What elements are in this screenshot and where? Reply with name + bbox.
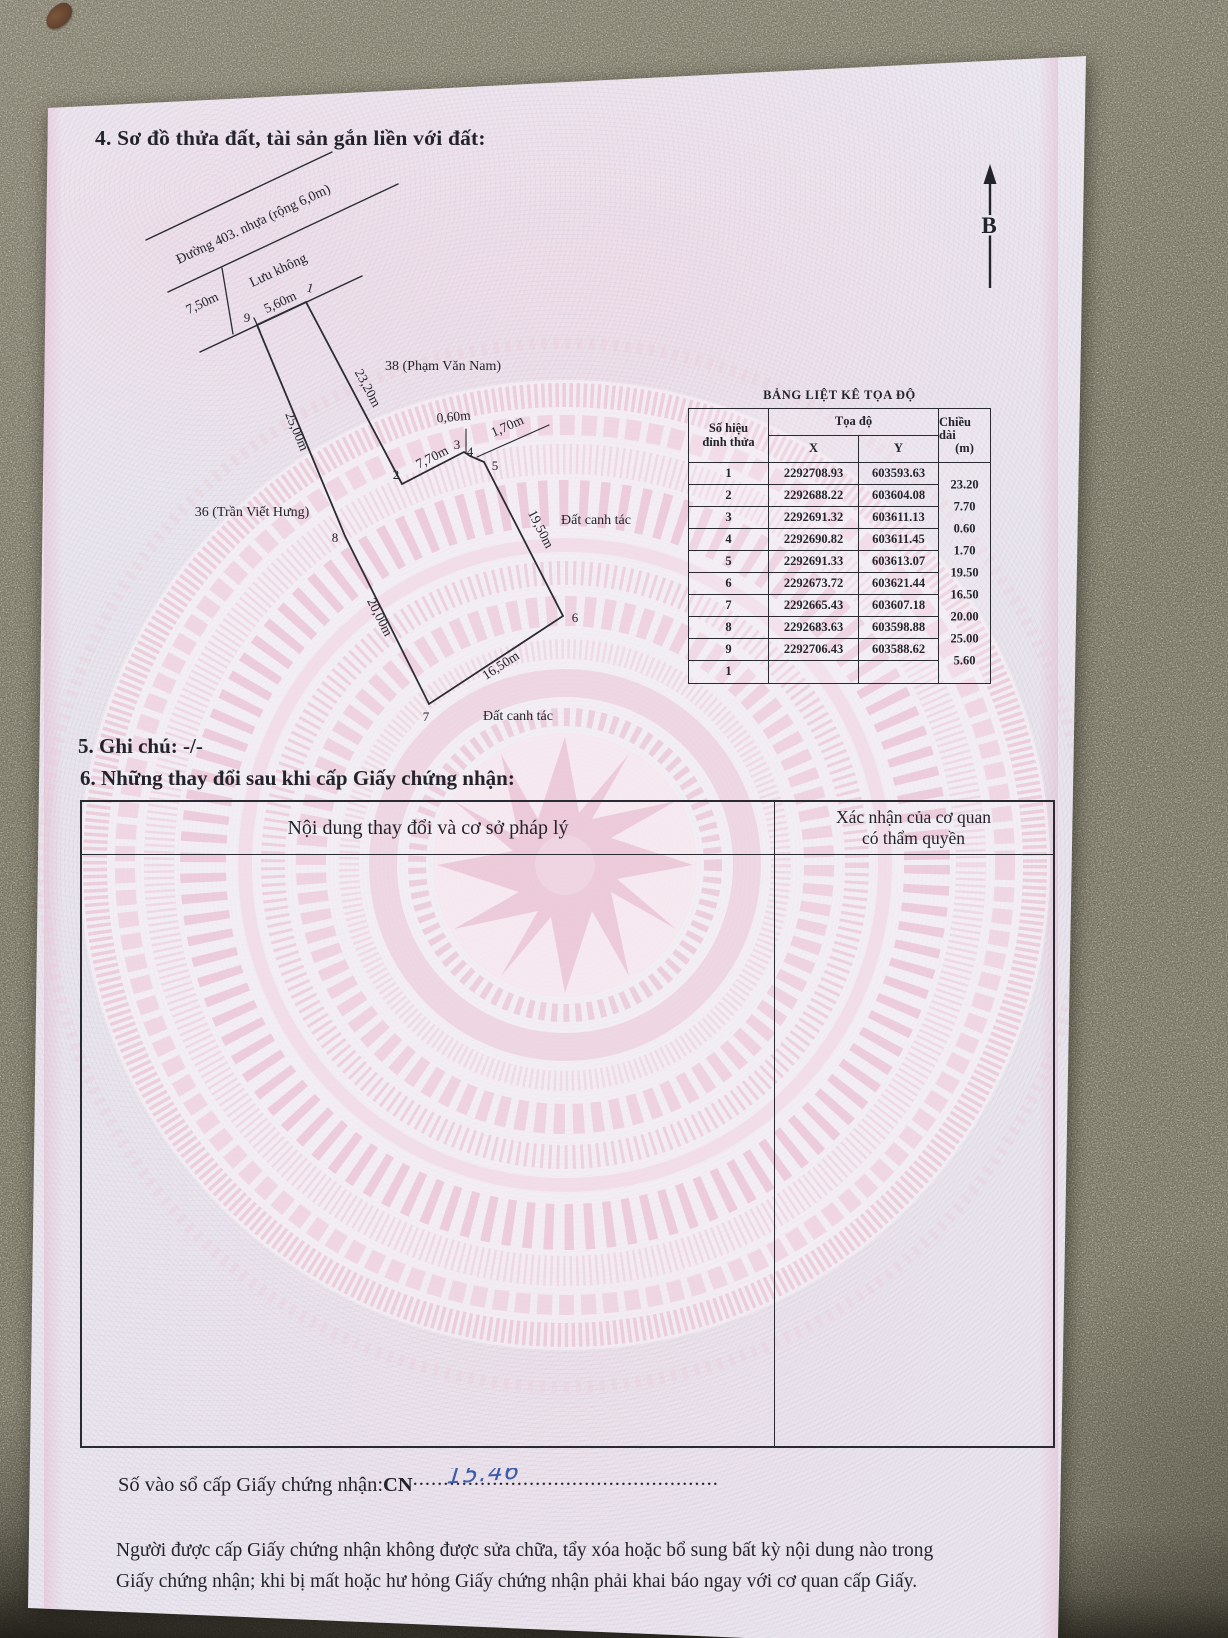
- coordinate-table: Số hiệu đỉnh thửa Tọa độ Chiều dài (m) X…: [688, 408, 991, 684]
- buffer-zone-label: Lưu không: [247, 251, 309, 291]
- coordinate-table-header-length: Chiều dài (m): [939, 409, 990, 463]
- vertex-id-cell: 4: [689, 529, 769, 551]
- parcel-diagram: Đường 403. nhựa (rộng 6,0m) 7,50m Lưu kh…: [140, 140, 715, 740]
- vertex-id-cell: 7: [689, 595, 769, 617]
- edge-length-value: 0.60: [939, 522, 990, 535]
- land-use-right-label: Đất canh tác: [561, 513, 631, 528]
- neighbor-right-label: 38 (Phạm Văn Nam): [385, 359, 501, 374]
- photographed-land-certificate: 4. Sơ đồ thửa đất, tài sản gắn liền với …: [0, 0, 1228, 1638]
- dim-20-00-label: 20,00m: [364, 595, 396, 639]
- north-arrow: B: [930, 150, 1055, 310]
- changes-table-header-divider: [82, 854, 1053, 855]
- edge-length-value: 7.70: [939, 500, 990, 513]
- edge-length-value: 16.50: [939, 588, 990, 601]
- header-vertex-line2: đỉnh thửa: [702, 436, 754, 449]
- header-length-line1: Chiều dài: [939, 416, 990, 442]
- section6-title: 6. Những thay đổi sau khi cấp Giấy chứng…: [80, 766, 515, 791]
- land-use-bottom-label: Đất canh tác: [483, 709, 553, 724]
- edge-length-value: 5.60: [939, 654, 990, 667]
- coord-y-cell: 603621.44: [859, 573, 939, 595]
- edge-length-value: 20.00: [939, 610, 990, 623]
- coord-y-cell: 603611.13: [859, 507, 939, 529]
- vertex-3-label: 3: [454, 437, 461, 452]
- coordinate-table-header-y: Y: [859, 436, 939, 463]
- dim-7-70-label: 7,70m: [413, 442, 451, 471]
- coord-x-cell: 2292691.33: [769, 551, 859, 573]
- vertex-id-cell: 1: [689, 661, 769, 683]
- vertex-id-cell: 8: [689, 617, 769, 639]
- setback-dim-label: 7,50m: [183, 289, 221, 317]
- changes-table-column-divider: [774, 802, 775, 1446]
- edge-length-value: 23.20: [939, 478, 990, 491]
- header-length-line2: (m): [955, 442, 974, 455]
- vertex-1-label: 1: [305, 280, 315, 296]
- dim-0-60-label: 0,60m: [436, 408, 472, 426]
- coord-x-cell: 2292673.72: [769, 573, 859, 595]
- north-label: B: [981, 213, 996, 238]
- coord-x-cell: [769, 661, 859, 683]
- registry-prefix: CN: [383, 1474, 413, 1496]
- coord-x-cell: 2292683.63: [769, 617, 859, 639]
- dim-19-50-label: 19,50m: [525, 507, 557, 551]
- vertex-5-label: 5: [492, 458, 499, 473]
- coordinate-table-header-x: X: [769, 436, 859, 463]
- coordinate-table-title: BẢNG LIỆT KÊ TỌA ĐỘ: [688, 388, 991, 403]
- vertex-2-label: 2: [393, 467, 400, 482]
- dim-16-50-label: 16,50m: [479, 648, 522, 683]
- vertex-7-label: 7: [423, 709, 430, 724]
- vertex-8-label: 8: [332, 530, 339, 545]
- changes-confirmation-header: Xác nhận của cơ quan có thẩm quyền: [774, 802, 1053, 854]
- coord-y-cell: 603593.63: [859, 463, 939, 485]
- registry-label: Số vào sổ cấp Giấy chứng nhận:: [118, 1474, 383, 1496]
- neighbor-left-label: 36 (Trần Viết Hưng): [195, 505, 310, 520]
- registry-number-line: Số vào sổ cấp Giấy chứng nhận:CN........…: [118, 1468, 785, 1497]
- vertex-9-label: 9: [244, 310, 251, 325]
- changes-content-header: Nội dung thay đổi và cơ sở pháp lý: [82, 802, 774, 854]
- coord-x-cell: 2292706.43: [769, 639, 859, 661]
- coord-y-cell: 603588.62: [859, 639, 939, 661]
- changes-table: Nội dung thay đổi và cơ sở pháp lý Xác n…: [80, 800, 1055, 1448]
- coord-y-cell: 603598.88: [859, 617, 939, 639]
- coord-y-cell: 603607.18: [859, 595, 939, 617]
- coord-y-cell: 603613.07: [859, 551, 939, 573]
- vertex-id-cell: 6: [689, 573, 769, 595]
- coord-x-cell: 2292665.43: [769, 595, 859, 617]
- registry-fill-line: ........................................…: [413, 1468, 785, 1491]
- vertex-id-cell: 3: [689, 507, 769, 529]
- coord-y-cell: [859, 661, 939, 683]
- coordinate-table-header-vertex: Số hiệu đỉnh thửa: [689, 409, 769, 463]
- coord-x-cell: 2292690.82: [769, 529, 859, 551]
- vertex-4-label: 4: [467, 444, 474, 459]
- header-vertex-line1: Số hiệu: [709, 422, 748, 435]
- confirmation-header-line2: có thẩm quyền: [862, 828, 965, 849]
- certificate-note: Người được cấp Giấy chứng nhận không đượ…: [116, 1535, 1006, 1597]
- road-name-label: Đường 403. nhựa (rộng 6,0m): [174, 182, 333, 268]
- vertex-id-cell: 1: [689, 463, 769, 485]
- coord-y-cell: 603611.45: [859, 529, 939, 551]
- page-content: 4. Sơ đồ thửa đất, tài sản gắn liền với …: [0, 0, 1228, 1638]
- note-line2: Giấy chứng nhận; khi bị mất hoặc hư hỏng…: [116, 1566, 1006, 1597]
- dim-25-00-label: 25,00m: [282, 409, 312, 453]
- coordinate-table-header-coords: Tọa độ: [769, 409, 939, 436]
- edge-length-value: 25.00: [939, 632, 990, 645]
- coord-y-cell: 603604.08: [859, 485, 939, 507]
- north-arrow-head: [984, 164, 997, 184]
- note-line1: Người được cấp Giấy chứng nhận không đượ…: [116, 1535, 1006, 1566]
- edge-length-value: 1.70: [939, 544, 990, 557]
- vertex-id-cell: 2: [689, 485, 769, 507]
- setback-dim-line: [222, 268, 233, 334]
- edge-length-column: 23.20 7.70 0.60 1.70 19.50 16.50 20.00 2…: [939, 463, 990, 683]
- dim-23-20-label: 23,20m: [352, 366, 385, 410]
- vertex-6-label: 6: [572, 610, 579, 625]
- section5-title: 5. Ghi chú: -/-: [78, 734, 203, 759]
- front-dim-label: 5,60m: [261, 288, 299, 316]
- dim-1-70-label: 1,70m: [489, 412, 527, 440]
- vertex-id-cell: 9: [689, 639, 769, 661]
- coord-x-cell: 2292708.93: [769, 463, 859, 485]
- coord-x-cell: 2292691.32: [769, 507, 859, 529]
- confirmation-header-line1: Xác nhận của cơ quan: [836, 807, 991, 828]
- coord-x-cell: 2292688.22: [769, 485, 859, 507]
- vertex-id-cell: 5: [689, 551, 769, 573]
- edge-length-value: 19.50: [939, 566, 990, 579]
